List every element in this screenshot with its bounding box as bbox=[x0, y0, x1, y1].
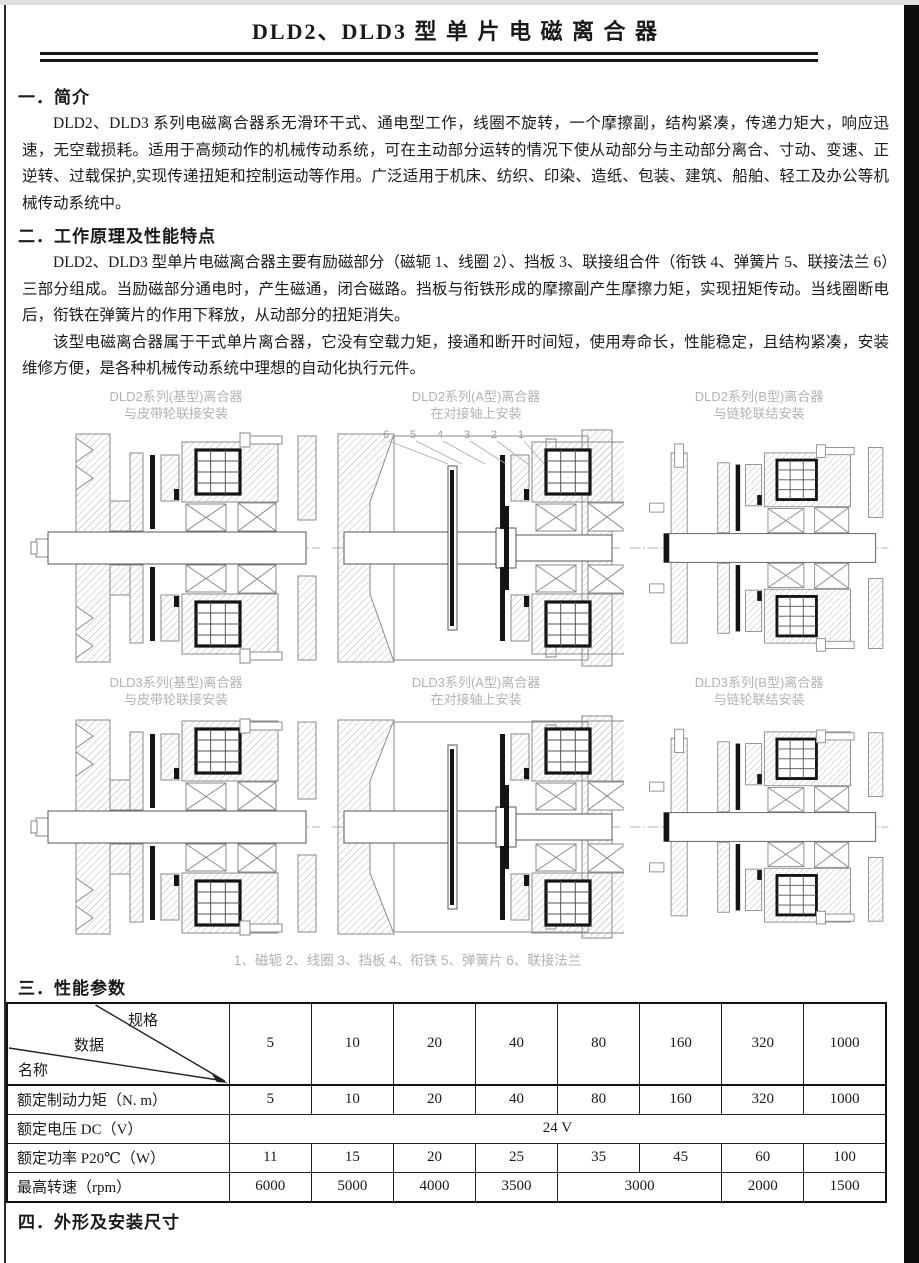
clutch-drawing-shaft bbox=[328, 708, 624, 946]
diagram-caption: 与链轮联结安装 bbox=[628, 691, 890, 708]
svg-text:5: 5 bbox=[410, 429, 416, 441]
diagram-caption: DLD3系列(基型)离合器 bbox=[28, 674, 324, 691]
table-cell: 100 bbox=[804, 1143, 886, 1172]
table-cell: 2000 bbox=[722, 1172, 804, 1202]
clutch-drawing-sprocket bbox=[628, 422, 890, 674]
diagram-grid: DLD2系列(基型)离合器 与皮带轮联接安装 DLD2系列(A型)离合器 在对接… bbox=[22, 388, 889, 946]
diagram-caption: DLD2系列(A型)离合器 bbox=[328, 388, 624, 405]
svg-text:6: 6 bbox=[383, 429, 389, 441]
scan-edge-left bbox=[4, 4, 6, 1263]
diagram-dld2-a: DLD2系列(A型)离合器 在对接轴上安装 654321 bbox=[328, 388, 624, 674]
section1-paragraph: DLD2、DLD3 系列电磁离合器系无滑环干式、通电型工作，线圈不旋转，一个摩擦… bbox=[22, 111, 889, 217]
diagram-caption: 与皮带轮联接安装 bbox=[28, 691, 324, 708]
diagram-caption: 与皮带轮联接安装 bbox=[28, 405, 324, 422]
table-cell: 160 bbox=[640, 1085, 722, 1115]
parts-legend: 1、磁轭 2、线圈 3、挡板 4、衔铁 5、弹簧片 6、联接法兰 bbox=[234, 949, 889, 969]
table-cell: 6000 bbox=[229, 1172, 311, 1202]
table-cell: 20 bbox=[393, 1085, 475, 1115]
table-row-label: 最高转速（rpm） bbox=[7, 1172, 229, 1202]
corner-label-name: 名称 bbox=[18, 1059, 48, 1080]
diagram-caption: DLD2系列(B型)离合器 bbox=[628, 388, 890, 405]
diagram-caption: 在对接轴上安装 bbox=[328, 405, 624, 422]
diagram-caption: 在对接轴上安装 bbox=[328, 691, 624, 708]
table-corner-cell: 规格 数据 名称 bbox=[7, 1003, 229, 1085]
table-row-speed: 最高转速（rpm） 6000 5000 4000 3500 3000 2000 … bbox=[7, 1172, 886, 1202]
table-row-torque: 额定制动力矩（N. m） 5 10 20 40 80 160 320 1000 bbox=[7, 1085, 886, 1115]
spec-col-header: 320 bbox=[722, 1003, 804, 1085]
page-content: DLD2、DLD3 型 单 片 电 磁 离 合 器 一．简介 DLD2、DLD3… bbox=[0, 0, 919, 1233]
table-cell: 10 bbox=[311, 1085, 393, 1115]
title-rule bbox=[40, 52, 818, 62]
section1-heading: 一．简介 bbox=[18, 83, 889, 108]
diagram-caption: DLD3系列(B型)离合器 bbox=[628, 674, 890, 691]
table-cell: 25 bbox=[475, 1143, 557, 1172]
section3-heading: 三．性能参数 bbox=[18, 974, 889, 999]
spec-col-header: 40 bbox=[475, 1003, 557, 1085]
table-row-label: 额定电压 DC（V） bbox=[7, 1114, 229, 1143]
performance-table: 规格 数据 名称 5 10 20 40 80 160 320 1000 额定制动… bbox=[6, 1002, 887, 1203]
svg-text:2: 2 bbox=[491, 429, 497, 441]
table-row-voltage: 额定电压 DC（V） 24 V bbox=[7, 1114, 886, 1143]
clutch-drawing-shaft: 654321 bbox=[328, 422, 624, 674]
spec-col-header: 5 bbox=[229, 1003, 311, 1085]
page-title: DLD2、DLD3 型 单 片 电 磁 离 合 器 bbox=[22, 14, 889, 46]
table-cell: 5000 bbox=[311, 1172, 393, 1202]
diagram-dld2-base: DLD2系列(基型)离合器 与皮带轮联接安装 bbox=[28, 388, 324, 674]
spec-col-header: 1000 bbox=[804, 1003, 886, 1085]
table-row-power: 额定功率 P20℃（W） 11 15 20 25 35 45 60 100 bbox=[7, 1143, 886, 1172]
table-cell: 1500 bbox=[804, 1172, 886, 1202]
svg-text:4: 4 bbox=[437, 429, 443, 441]
spec-col-header: 80 bbox=[558, 1003, 640, 1085]
table-cell: 3500 bbox=[475, 1172, 557, 1202]
document-page: DLD2、DLD3 型 单 片 电 磁 离 合 器 一．简介 DLD2、DLD3… bbox=[0, 0, 919, 1263]
clutch-drawing-pulley bbox=[28, 422, 324, 674]
table-cell: 35 bbox=[558, 1143, 640, 1172]
diagram-caption: 与链轮联结安装 bbox=[628, 405, 890, 422]
section4-heading: 四．外形及安装尺寸 bbox=[18, 1208, 889, 1233]
table-cell: 320 bbox=[722, 1085, 804, 1115]
diagram-caption: DLD3系列(A型)离合器 bbox=[328, 674, 624, 691]
table-cell: 1000 bbox=[804, 1085, 886, 1115]
table-row-label: 额定功率 P20℃（W） bbox=[7, 1143, 229, 1172]
spec-col-header: 10 bbox=[311, 1003, 393, 1085]
corner-label-data: 数据 bbox=[74, 1034, 104, 1055]
diagram-dld3-a: DLD3系列(A型)离合器 在对接轴上安装 bbox=[328, 674, 624, 946]
svg-text:3: 3 bbox=[464, 429, 470, 441]
diagram-caption: DLD2系列(基型)离合器 bbox=[28, 388, 324, 405]
table-cell: 45 bbox=[640, 1143, 722, 1172]
table-cell-merged: 24 V bbox=[229, 1114, 886, 1143]
corner-label-spec: 规格 bbox=[128, 1009, 158, 1030]
scan-edge-top bbox=[0, 0, 919, 5]
table-cell: 4000 bbox=[393, 1172, 475, 1202]
table-cell: 40 bbox=[475, 1085, 557, 1115]
clutch-drawing-pulley bbox=[28, 708, 324, 946]
table-cell: 60 bbox=[722, 1143, 804, 1172]
table-cell: 80 bbox=[558, 1085, 640, 1115]
section2-paragraph-1: DLD2、DLD3 型单片电磁离合器主要有励磁部分（磁轭 1、线圈 2）、挡板 … bbox=[22, 250, 889, 330]
table-cell: 5 bbox=[229, 1085, 311, 1115]
table-cell: 20 bbox=[393, 1143, 475, 1172]
section2-paragraph-2: 该型电磁离合器属于干式单片离合器，它没有空载力矩，接通和断开时间短，使用寿命长，… bbox=[22, 330, 889, 383]
spec-col-header: 160 bbox=[640, 1003, 722, 1085]
diagram-dld2-b: DLD2系列(B型)离合器 与链轮联结安装 bbox=[628, 388, 890, 674]
table-cell-merged: 3000 bbox=[558, 1172, 722, 1202]
table-cell: 11 bbox=[229, 1143, 311, 1172]
clutch-drawing-sprocket bbox=[628, 708, 890, 946]
diagram-dld3-b: DLD3系列(B型)离合器 与链轮联结安装 bbox=[628, 674, 890, 946]
section2-heading: 二．工作原理及性能特点 bbox=[18, 222, 889, 247]
svg-text:1: 1 bbox=[518, 429, 524, 441]
diagram-dld3-base: DLD3系列(基型)离合器 与皮带轮联接安装 bbox=[28, 674, 324, 946]
scan-edge-right bbox=[904, 4, 919, 1263]
spec-col-header: 20 bbox=[393, 1003, 475, 1085]
table-row-label: 额定制动力矩（N. m） bbox=[7, 1085, 229, 1115]
table-cell: 15 bbox=[311, 1143, 393, 1172]
